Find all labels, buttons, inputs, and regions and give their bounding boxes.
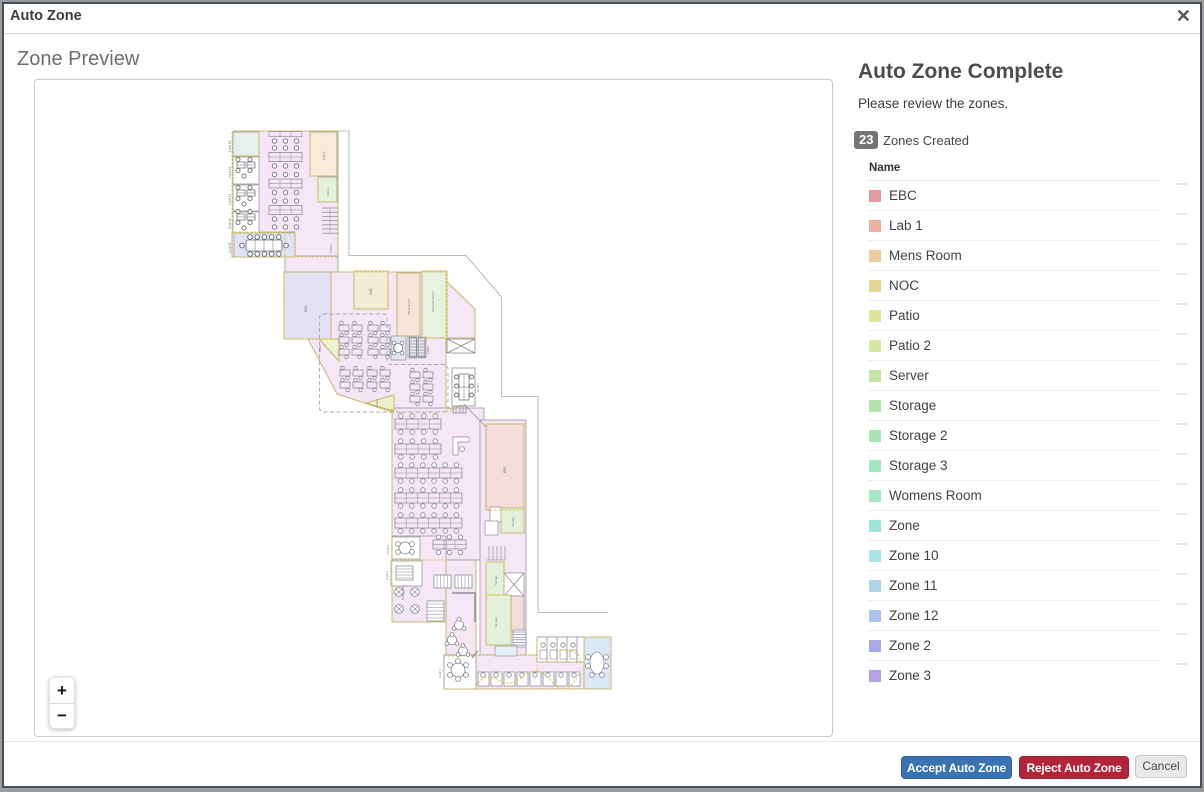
svg-text:Storage: Storage <box>511 517 515 527</box>
svg-text:Coffee: Coffee <box>426 345 430 354</box>
svg-text:EBC: EBC <box>503 465 507 473</box>
svg-text:Server: Server <box>326 187 330 196</box>
svg-text:Conf 5: Conf 5 <box>386 545 390 554</box>
svg-text:Coffee: Coffee <box>329 244 333 253</box>
svg-text:Patio: Patio <box>375 399 379 406</box>
svg-text:Storage: Storage <box>494 617 498 627</box>
svg-text:Conf 7: Conf 7 <box>393 343 397 352</box>
svg-text:Conf 6: Conf 6 <box>476 383 480 392</box>
svg-text:Patio: Patio <box>318 345 322 352</box>
svg-text:Conf 4: Conf 4 <box>385 571 389 580</box>
svg-text:Lab 1: Lab 1 <box>322 151 326 160</box>
svg-text:Conf 11: Conf 11 <box>228 242 232 253</box>
svg-text:Break Area: Break Area <box>401 585 405 600</box>
svg-text:Conf 13: Conf 13 <box>228 194 232 205</box>
svg-text:Storage: Storage <box>494 575 498 585</box>
svg-text:EBC: EBC <box>304 304 308 312</box>
svg-text:Conf 3: Conf 3 <box>438 669 442 678</box>
svg-text:Womens Room: Womens Room <box>431 291 435 312</box>
svg-text:Conf 12: Conf 12 <box>228 218 232 229</box>
svg-text:Conf 15: Conf 15 <box>228 141 232 152</box>
svg-text:NOC: NOC <box>369 287 373 295</box>
svg-text:Mens Room: Mens Room <box>407 298 411 315</box>
svg-text:Conf 14: Conf 14 <box>228 167 232 178</box>
